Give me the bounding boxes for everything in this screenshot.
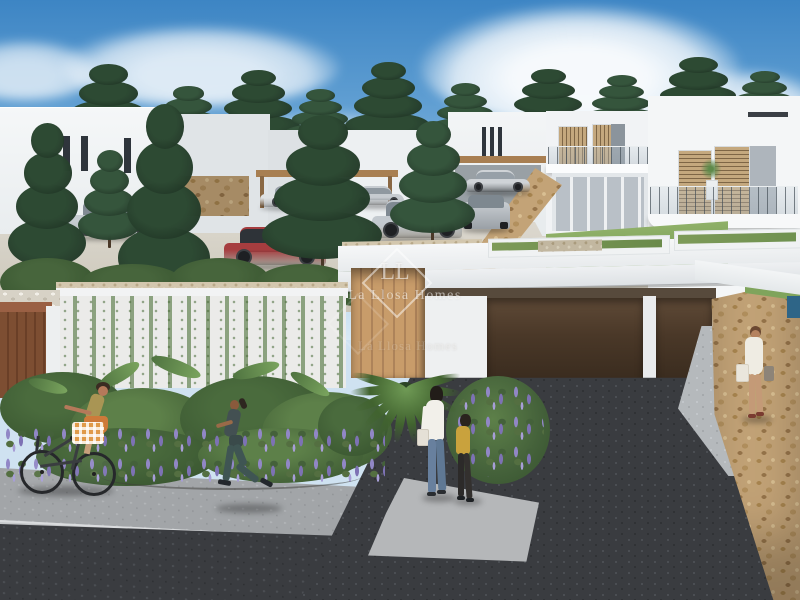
woman-with-shopping-bags xyxy=(734,326,782,450)
walking-woman-jeans-leg xyxy=(436,439,447,491)
cyclist-woman xyxy=(12,382,124,500)
jogger-woman xyxy=(212,398,296,514)
walking-child-torso xyxy=(456,426,470,454)
silver-car-under-pergola xyxy=(466,170,530,193)
car-wheel xyxy=(500,222,508,230)
roof-gravel-patch xyxy=(538,239,602,251)
pool-glimpse xyxy=(787,296,800,318)
woman-shoe xyxy=(748,414,756,418)
woman-leg xyxy=(755,374,764,414)
car-wheel xyxy=(474,182,483,191)
shopping-bag-light xyxy=(736,364,749,382)
glass-doors xyxy=(556,177,644,231)
walking-woman-shoe xyxy=(427,492,436,496)
bicycle-frame xyxy=(44,438,73,458)
pine-tree xyxy=(8,120,86,280)
walking-child-leg xyxy=(463,453,472,499)
architectural-render: LL La Llosa Homes La Llosa Homes xyxy=(0,0,800,600)
jogger-back-calf xyxy=(235,462,260,484)
walking-child-shoe xyxy=(466,498,474,502)
pine-tree xyxy=(390,118,475,243)
walking-woman-jeans-leg xyxy=(428,439,436,493)
walking-child-shoe xyxy=(457,496,465,500)
jogger-front-shoe xyxy=(218,479,232,486)
garage-door-left xyxy=(487,298,643,382)
walking-pair xyxy=(420,386,486,572)
walking-woman-shoe xyxy=(437,490,446,494)
gingham-pannier-bag xyxy=(72,422,104,444)
roof-vent xyxy=(748,112,788,117)
woman-shoe xyxy=(756,412,764,416)
jogger-back-shoe xyxy=(260,477,274,488)
shadow xyxy=(216,504,282,513)
jogger-ponytail xyxy=(238,397,248,409)
car-wheel xyxy=(513,182,522,191)
bicycle-front-wheel xyxy=(20,450,64,494)
shadow xyxy=(742,416,772,423)
balcony-glass-railing xyxy=(650,186,798,217)
garage-pillar xyxy=(643,296,656,382)
shopping-bag-dark xyxy=(764,366,774,381)
